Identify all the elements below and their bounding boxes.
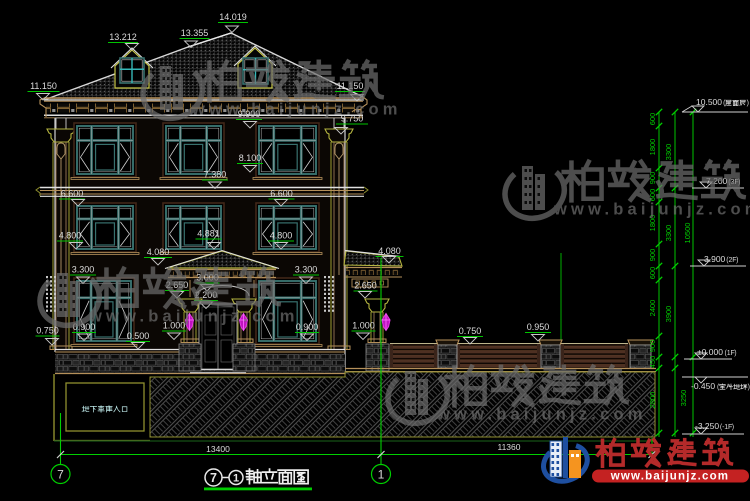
svg-text:600: 600	[648, 267, 657, 280]
svg-text:): )	[734, 350, 736, 357]
svg-text:6.600: 6.600	[61, 189, 84, 199]
svg-text:-0.450: -0.450	[691, 381, 715, 391]
svg-text:3.300: 3.300	[72, 265, 95, 275]
svg-text:10.500: 10.500	[696, 97, 722, 107]
svg-text:): )	[732, 424, 734, 431]
svg-text:3900: 3900	[664, 306, 673, 323]
svg-text:3300: 3300	[664, 225, 673, 242]
svg-text:7.380: 7.380	[204, 170, 227, 180]
svg-text:www.baijunjz.com: www.baijunjz.com	[610, 471, 729, 483]
svg-text:11.150: 11.150	[30, 81, 57, 91]
svg-text:): )	[747, 100, 749, 107]
svg-text:): )	[736, 257, 738, 264]
svg-text:11360: 11360	[497, 442, 520, 452]
svg-text:1: 1	[378, 468, 385, 482]
svg-text:4.080: 4.080	[378, 246, 401, 256]
svg-text:14.019: 14.019	[219, 12, 247, 22]
svg-text:13.212: 13.212	[109, 32, 137, 42]
svg-text:13400: 13400	[206, 444, 230, 454]
svg-text:13.355: 13.355	[181, 28, 209, 38]
svg-text:600: 600	[648, 113, 657, 126]
svg-text:0.750: 0.750	[36, 326, 59, 336]
svg-text:450: 450	[648, 356, 657, 369]
svg-text:4.080: 4.080	[147, 247, 170, 257]
svg-text:1.000: 1.000	[352, 321, 375, 331]
svg-text:2.650: 2.650	[354, 281, 377, 291]
svg-text:www.baijunjz.com: www.baijunjz.com	[88, 308, 299, 326]
svg-text:0.900: 0.900	[296, 322, 319, 332]
svg-text:4.800: 4.800	[59, 231, 82, 241]
svg-text:7: 7	[57, 468, 64, 482]
svg-text:0.500: 0.500	[127, 331, 150, 341]
svg-text:-3.250: -3.250	[695, 421, 719, 431]
svg-text:3300: 3300	[664, 144, 673, 161]
svg-text:900: 900	[648, 249, 657, 262]
svg-text:6.600: 6.600	[270, 189, 293, 199]
svg-text:7: 7	[210, 471, 217, 485]
svg-text:900: 900	[648, 340, 657, 353]
svg-text:0.750: 0.750	[459, 326, 482, 336]
svg-text:3.900: 3.900	[704, 254, 726, 264]
svg-text:8.100: 8.100	[239, 153, 262, 163]
svg-text:1800: 1800	[648, 139, 657, 156]
svg-text:2800: 2800	[648, 392, 657, 409]
svg-text:www.baijunjz.com: www.baijunjz.com	[191, 101, 402, 119]
svg-text:3.300: 3.300	[295, 265, 318, 275]
svg-text:1: 1	[233, 473, 239, 485]
svg-text:±0.000: ±0.000	[697, 347, 723, 357]
svg-text:4.800: 4.800	[270, 231, 293, 241]
svg-text:3250: 3250	[679, 390, 688, 407]
svg-text:0.950: 0.950	[527, 322, 550, 332]
svg-text:www.baijunjz.com: www.baijunjz.com	[553, 201, 750, 219]
svg-text:2400: 2400	[648, 300, 657, 317]
svg-text:4.881: 4.881	[197, 229, 220, 239]
svg-text:www.baijunjz.com: www.baijunjz.com	[436, 406, 647, 424]
svg-text:10500: 10500	[683, 223, 692, 244]
